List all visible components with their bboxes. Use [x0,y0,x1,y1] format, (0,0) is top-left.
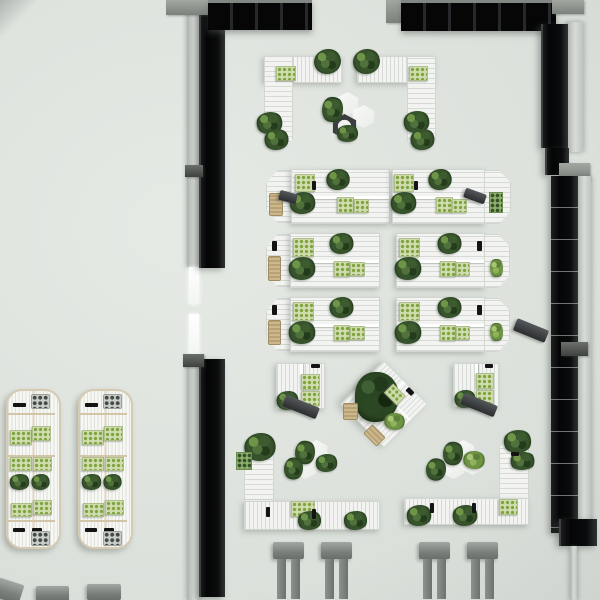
seedling-tray [436,197,453,213]
bench-leg [325,559,334,599]
plant-bush [288,257,316,280]
seedling-tray [10,430,32,445]
seedling-tray [399,302,420,321]
metal-bench [273,542,304,559]
black-handle [272,305,277,315]
door-light [189,314,199,356]
seedling-tray [10,457,32,471]
plant-bush [81,474,102,490]
plant-bush [410,129,435,150]
plant-bush [336,125,359,142]
bench-leg [437,559,446,599]
produce-crate [103,394,122,409]
left-wall-unit-lower [199,359,225,597]
left-wall-unit-upper [199,10,225,268]
seedling-tray [105,500,124,515]
black-handle [13,528,25,532]
wall-bracket-dark [561,342,588,356]
seedling-tray [104,426,123,441]
black-handle [477,241,482,251]
plant-bush [329,233,354,254]
right-wall-unit-bottom [559,519,597,546]
top-door-post [386,0,401,23]
black-handle [477,305,482,315]
bench-leg [277,559,286,599]
bench-leg [471,559,480,599]
display-divider [8,413,55,415]
display-divider [8,520,55,522]
metal-bench [0,577,24,600]
seedling-tray [105,457,124,471]
metal-bench [419,542,450,559]
plant-bush [426,458,446,481]
display-divider [80,413,127,415]
metal-bench [467,542,498,559]
plant-bush [329,297,354,318]
seedling-tray [409,66,428,81]
display-divider [80,520,127,522]
plant-bush-light [490,322,503,342]
scene [0,0,600,600]
black-handle [272,241,277,251]
seedling-tray-dark [236,452,252,470]
black-handle [312,509,316,519]
wicker-basket [343,403,358,420]
seedling-tray [82,457,104,471]
seedling-tray [350,262,365,276]
plant-bush [264,129,289,150]
seedling-tray [33,457,52,471]
plant-bush [503,430,532,453]
seedling-tray [499,499,518,515]
seedling-tray-dark [489,192,503,213]
seedling-tray [301,374,320,390]
metal-bench [36,586,69,600]
wicker-basket [268,320,281,345]
bench-leg [339,559,348,599]
plant-bush [353,49,380,74]
plant-bush [288,321,316,344]
seedling-tray [293,238,314,257]
black-handle [430,503,434,513]
plant-bush [314,49,341,74]
plant-bush [406,505,432,526]
plant-bush [390,192,417,214]
wall-bracket [552,0,584,14]
seedling-tray [452,199,467,213]
black-handle [85,528,97,532]
plant-bush [326,169,350,190]
door-light [189,267,199,304]
right-wall-band-upper [566,22,583,152]
plant-bush [343,511,368,530]
wall-bracket [166,0,214,15]
seedling-tray [334,261,350,277]
plant-bush [443,441,463,466]
plant-bush [437,297,462,318]
right-wall-unit-top [541,24,568,148]
seedling-tray [334,325,350,341]
top-wall-panel-right [401,0,556,31]
plant-bush [9,474,30,490]
seedling-tray [440,325,456,341]
seedling-tray [476,373,494,389]
plant-bush [394,321,422,344]
right-wall-line [570,546,577,600]
plant-bush-light [384,413,405,430]
plant-bush [297,511,322,530]
black-handle [472,503,476,513]
plant-bush [394,257,422,280]
seedling-tray [354,199,369,213]
black-handle [414,181,418,190]
wall-bench [513,318,549,343]
black-handle [485,364,493,368]
black-handle [13,403,26,407]
produce-crate [31,531,50,546]
plant-bush [322,96,343,123]
seedling-tray [293,302,314,321]
seedling-tray [33,500,52,515]
wicker-basket [268,256,281,281]
seedling-tray [394,174,414,192]
black-handle [511,452,519,456]
black-handle [312,181,316,190]
plant-bush-light [490,258,503,278]
bench-leg [485,559,494,599]
black-handle [311,364,320,368]
seedling-tray [82,430,104,445]
seedling-tray [337,197,354,213]
seedling-tray [32,426,51,441]
seedling-tray [83,503,104,517]
top-wall-panel-left [208,0,312,30]
seedling-tray [399,238,420,257]
produce-crate [31,394,50,409]
wall-bracket-dark [185,165,203,177]
black-handle [85,403,98,407]
plant-bush [31,474,50,490]
black-handle [266,507,270,517]
seedling-tray [11,503,32,517]
seedling-tray [456,262,470,276]
metal-bench [87,584,121,600]
corner-shadow [0,0,36,36]
plant-bush [315,454,338,472]
plant-bush [437,233,462,254]
produce-crate [103,531,122,546]
plant-bush [103,474,122,490]
plant-bush [428,169,452,190]
bench-leg [291,559,300,599]
metal-bench [321,542,352,559]
bench-leg [423,559,432,599]
wall-bracket-dark [183,354,204,367]
plant-bush-light [463,451,485,469]
seedling-tray [456,326,470,340]
seedling-tray [350,326,365,340]
plant-bush [284,457,303,480]
seedling-tray [440,261,456,277]
seedling-tray [276,66,296,81]
